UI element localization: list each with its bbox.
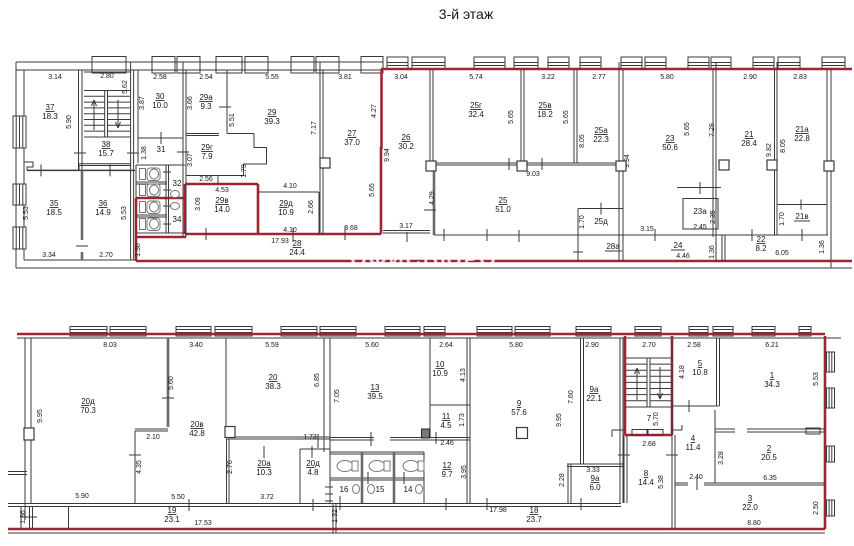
svg-text:2.46: 2.46 [440, 440, 454, 447]
svg-text:7.60: 7.60 [568, 390, 575, 404]
svg-text:12: 12 [443, 461, 452, 470]
svg-text:2.70: 2.70 [99, 252, 113, 259]
svg-text:6.21: 6.21 [765, 342, 779, 349]
svg-text:20в: 20в [190, 420, 203, 429]
svg-text:28а: 28а [606, 242, 620, 251]
svg-text:37.0: 37.0 [344, 138, 360, 147]
svg-text:18.2: 18.2 [537, 110, 553, 119]
svg-text:9.95: 9.95 [556, 413, 563, 427]
svg-text:1.73: 1.73 [459, 413, 466, 427]
svg-text:50.6: 50.6 [662, 143, 678, 152]
svg-text:2.83: 2.83 [793, 74, 807, 81]
svg-text:5.53: 5.53 [121, 206, 128, 220]
svg-text:10.0: 10.0 [152, 101, 168, 110]
svg-text:4.13: 4.13 [460, 368, 467, 382]
svg-text:7: 7 [647, 414, 652, 423]
svg-text:3.66: 3.66 [187, 96, 194, 110]
svg-text:29в: 29в [215, 196, 228, 205]
svg-text:30.2: 30.2 [398, 142, 414, 151]
svg-text:11: 11 [442, 412, 451, 421]
svg-text:ОФИСБЮРО: ОФИСБЮРО [350, 248, 497, 271]
svg-text:1.36: 1.36 [135, 243, 142, 257]
svg-text:25в: 25в [538, 101, 551, 110]
svg-text:10.9: 10.9 [278, 208, 294, 217]
svg-text:51.0: 51.0 [495, 205, 511, 214]
svg-text:24: 24 [674, 241, 683, 250]
svg-text:25: 25 [499, 196, 508, 205]
svg-text:4.53: 4.53 [215, 187, 229, 194]
svg-text:22.1: 22.1 [586, 394, 602, 403]
svg-text:1.70: 1.70 [779, 212, 786, 226]
svg-text:7.29: 7.29 [709, 123, 716, 137]
svg-text:20а: 20а [257, 459, 271, 468]
svg-text:2.90: 2.90 [743, 74, 757, 81]
svg-text:3.09: 3.09 [195, 197, 202, 211]
svg-text:7.05: 7.05 [334, 389, 341, 403]
svg-text:1.73: 1.73 [303, 434, 317, 441]
svg-text:5.90: 5.90 [66, 115, 73, 129]
svg-text:10.3: 10.3 [256, 468, 272, 477]
svg-text:5.38: 5.38 [658, 475, 665, 489]
svg-text:39.3: 39.3 [264, 117, 280, 126]
svg-text:25а: 25а [594, 126, 608, 135]
svg-text:5.70: 5.70 [653, 412, 660, 426]
svg-text:38: 38 [102, 140, 111, 149]
svg-text:23: 23 [666, 134, 675, 143]
svg-text:2.45: 2.45 [693, 224, 707, 231]
svg-text:4.29: 4.29 [429, 191, 436, 205]
svg-text:30: 30 [156, 92, 165, 101]
svg-text:15.7: 15.7 [98, 149, 114, 158]
svg-text:6.35: 6.35 [763, 475, 777, 482]
svg-text:9а: 9а [590, 385, 599, 394]
svg-text:2.68: 2.68 [642, 441, 656, 448]
svg-text:4.18: 4.18 [679, 365, 686, 379]
svg-text:14.4: 14.4 [638, 478, 654, 487]
svg-text:32.4: 32.4 [468, 110, 484, 119]
svg-text:39.5: 39.5 [367, 392, 383, 401]
svg-text:4.35: 4.35 [136, 460, 143, 474]
svg-text:8.80: 8.80 [747, 520, 761, 527]
svg-text:28.4: 28.4 [741, 139, 757, 148]
svg-text:5.80: 5.80 [660, 74, 674, 81]
svg-text:26: 26 [402, 133, 411, 142]
svg-text:23.7: 23.7 [526, 515, 542, 524]
svg-text:29д: 29д [279, 199, 293, 208]
svg-text:9.7: 9.7 [441, 470, 453, 479]
svg-text:5.62: 5.62 [122, 80, 129, 94]
svg-text:17.93: 17.93 [271, 238, 289, 245]
svg-text:1.36: 1.36 [709, 245, 716, 259]
svg-text:3.14: 3.14 [48, 74, 62, 81]
svg-text:3.07: 3.07 [187, 153, 194, 167]
svg-text:57.6: 57.6 [511, 408, 527, 417]
svg-text:22.3: 22.3 [593, 135, 609, 144]
svg-text:6.05: 6.05 [775, 250, 789, 257]
svg-text:31: 31 [157, 145, 166, 154]
svg-text:2.58: 2.58 [687, 342, 701, 349]
svg-text:2.90: 2.90 [585, 342, 599, 349]
svg-text:37: 37 [46, 103, 55, 112]
svg-text:5.53: 5.53 [813, 372, 820, 386]
svg-text:2.58: 2.58 [153, 74, 167, 81]
svg-text:14: 14 [404, 485, 413, 494]
svg-text:20д: 20д [306, 459, 320, 468]
svg-text:5.60: 5.60 [168, 376, 175, 390]
svg-text:6.85: 6.85 [314, 373, 321, 387]
svg-text:18.5: 18.5 [46, 208, 62, 217]
svg-text:22.0: 22.0 [742, 503, 758, 512]
svg-text:5.55: 5.55 [265, 74, 279, 81]
svg-text:2.54: 2.54 [199, 74, 213, 81]
svg-text:1.32: 1.32 [332, 509, 339, 523]
svg-text:5.59: 5.59 [265, 342, 279, 349]
svg-text:9.03: 9.03 [526, 171, 540, 178]
svg-text:4.46: 4.46 [676, 253, 690, 260]
svg-text:5.60: 5.60 [365, 342, 379, 349]
svg-text:3.34: 3.34 [42, 252, 56, 259]
svg-text:36: 36 [99, 199, 108, 208]
svg-text:22.8: 22.8 [794, 134, 810, 143]
svg-text:16: 16 [340, 485, 349, 494]
svg-text:1.70: 1.70 [579, 215, 586, 229]
svg-text:15: 15 [376, 485, 385, 494]
svg-text:28: 28 [293, 239, 302, 248]
svg-text:4.8: 4.8 [307, 468, 319, 477]
svg-text:1.38: 1.38 [141, 146, 148, 160]
svg-text:9.94: 9.94 [384, 148, 391, 162]
svg-text:27: 27 [348, 129, 357, 138]
svg-text:18.3: 18.3 [42, 112, 58, 121]
svg-text:23а: 23а [693, 207, 707, 216]
svg-text:10: 10 [436, 360, 445, 369]
svg-text:22: 22 [757, 235, 766, 244]
svg-text:5.74: 5.74 [469, 74, 483, 81]
svg-text:3.87: 3.87 [139, 96, 146, 110]
svg-text:3.28: 3.28 [718, 451, 725, 465]
svg-text:2.50: 2.50 [813, 501, 820, 515]
svg-text:14.9: 14.9 [95, 208, 111, 217]
svg-text:2.66: 2.66 [308, 200, 315, 214]
svg-text:2.28: 2.28 [559, 473, 566, 487]
svg-text:25д: 25д [594, 217, 608, 226]
svg-text:35: 35 [50, 199, 59, 208]
svg-text:3.22: 3.22 [541, 74, 555, 81]
svg-text:2: 2 [767, 444, 772, 453]
svg-text:29а: 29а [199, 93, 213, 102]
svg-text:18: 18 [530, 506, 539, 515]
svg-text:3.68: 3.68 [344, 225, 358, 232]
svg-text:10.9: 10.9 [432, 369, 448, 378]
svg-text:8.05: 8.05 [579, 134, 586, 148]
svg-text:20д: 20д [81, 397, 95, 406]
svg-text:5.65: 5.65 [508, 110, 515, 124]
svg-text:9а: 9а [591, 474, 600, 483]
svg-text:3.81: 3.81 [338, 74, 352, 81]
svg-text:25г: 25г [470, 101, 482, 110]
svg-text:5: 5 [698, 359, 703, 368]
svg-text:34.3: 34.3 [764, 380, 780, 389]
svg-text:7.17: 7.17 [311, 121, 318, 135]
svg-text:19: 19 [168, 506, 177, 515]
svg-text:8.05: 8.05 [780, 139, 787, 153]
svg-text:34: 34 [173, 215, 182, 224]
svg-text:4.10: 4.10 [283, 227, 297, 234]
svg-text:8: 8 [644, 469, 649, 478]
svg-text:2.70: 2.70 [642, 342, 656, 349]
svg-text:8.03: 8.03 [103, 342, 117, 349]
svg-text:70.3: 70.3 [80, 406, 96, 415]
svg-text:2.10: 2.10 [146, 434, 160, 441]
svg-text:10.8: 10.8 [692, 368, 708, 377]
svg-text:2.35: 2.35 [710, 210, 717, 224]
svg-text:4.5: 4.5 [440, 421, 452, 430]
svg-text:14.0: 14.0 [214, 205, 230, 214]
svg-text:5.51: 5.51 [229, 113, 236, 127]
svg-text:5.90: 5.90 [75, 493, 89, 500]
svg-text:4.27: 4.27 [371, 104, 378, 118]
svg-text:1.36: 1.36 [819, 240, 826, 254]
svg-text:5.65: 5.65 [563, 110, 570, 124]
svg-text:17.98: 17.98 [489, 507, 507, 514]
svg-text:7.9: 7.9 [201, 152, 213, 161]
svg-text:8.2: 8.2 [755, 244, 767, 253]
svg-text:3.33: 3.33 [586, 467, 600, 474]
svg-text:3.15: 3.15 [640, 226, 654, 233]
svg-text:42.8: 42.8 [189, 429, 205, 438]
svg-text:1.79: 1.79 [241, 164, 248, 178]
svg-text:1: 1 [770, 371, 775, 380]
svg-text:3-й этаж: 3-й этаж [439, 6, 494, 22]
svg-text:4.10: 4.10 [283, 183, 297, 190]
svg-text:5.65: 5.65 [369, 183, 376, 197]
svg-text:5.65: 5.65 [684, 122, 691, 136]
svg-text:5.50: 5.50 [171, 494, 185, 501]
svg-text:13: 13 [371, 383, 380, 392]
svg-text:6.0: 6.0 [589, 483, 601, 492]
svg-text:3.04: 3.04 [394, 74, 408, 81]
svg-text:29г: 29г [201, 143, 213, 152]
svg-text:17.53: 17.53 [194, 520, 212, 527]
svg-text:11.4: 11.4 [686, 443, 702, 452]
svg-text:2.76: 2.76 [227, 460, 234, 474]
svg-text:21в: 21в [795, 212, 808, 221]
svg-text:9.3: 9.3 [200, 102, 212, 111]
svg-text:2.64: 2.64 [439, 342, 453, 349]
svg-text:24.4: 24.4 [289, 248, 305, 257]
svg-text:3.17: 3.17 [399, 223, 413, 230]
svg-text:23.1: 23.1 [164, 515, 180, 524]
svg-text:3.72: 3.72 [260, 494, 274, 501]
svg-text:9.82: 9.82 [766, 143, 773, 157]
svg-text:2.77: 2.77 [592, 74, 606, 81]
svg-text:21: 21 [745, 130, 754, 139]
svg-text:3: 3 [748, 494, 753, 503]
svg-text:38.3: 38.3 [265, 382, 281, 391]
svg-text:3.40: 3.40 [189, 342, 203, 349]
svg-text:9: 9 [517, 399, 522, 408]
svg-text:2.56: 2.56 [199, 176, 213, 183]
svg-text:32: 32 [173, 179, 182, 188]
svg-text:2.40: 2.40 [689, 474, 703, 481]
svg-text:20: 20 [269, 373, 278, 382]
svg-text:2.80: 2.80 [100, 73, 114, 80]
svg-text:9.95: 9.95 [37, 409, 44, 423]
svg-text:29: 29 [268, 108, 277, 117]
svg-text:4: 4 [691, 434, 696, 443]
svg-text:5.53: 5.53 [23, 206, 30, 220]
svg-text:5.80: 5.80 [509, 342, 523, 349]
svg-text:20.5: 20.5 [761, 453, 777, 462]
svg-text:21а: 21а [795, 125, 809, 134]
